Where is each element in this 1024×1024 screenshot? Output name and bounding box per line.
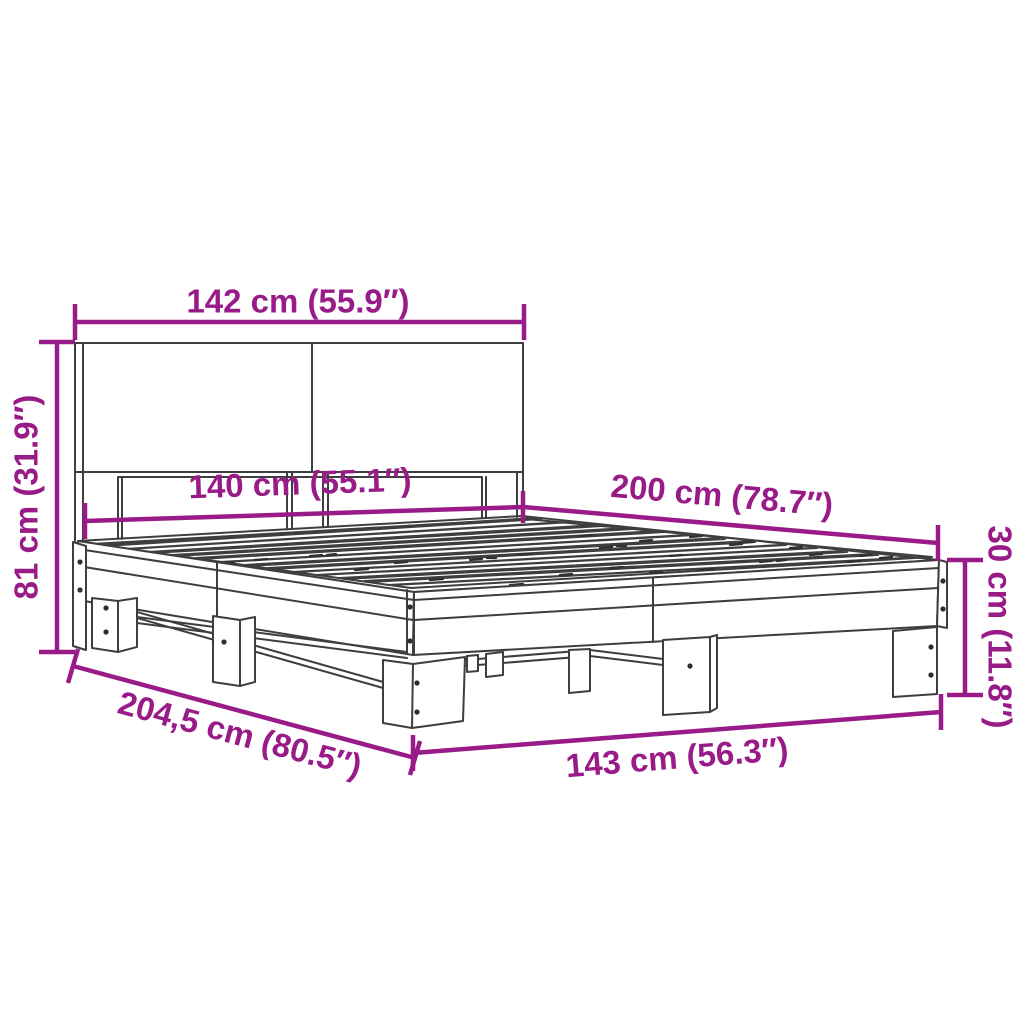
corner-leg <box>383 657 465 728</box>
dimension-frame-height: 30 cm (11.8″) <box>947 526 1019 729</box>
bed-frame-drawing <box>73 343 947 728</box>
dimension-headboard-width: 142 cm (55.9″) <box>75 283 524 341</box>
inner-block-b <box>486 652 503 677</box>
foot-mid-leg <box>663 635 717 715</box>
label-headboard-height: 81 cm (31.9″) <box>8 395 45 600</box>
inner-block-a <box>467 655 478 672</box>
label-slat-width: 140 cm (55.1″) <box>188 461 412 506</box>
right-end-cap <box>937 560 947 628</box>
side-mid-leg <box>213 616 255 686</box>
headboard-panel <box>75 343 523 472</box>
label-headboard-width: 142 cm (55.9″) <box>186 283 409 320</box>
diagram-canvas: 142 cm (55.9″) 81 cm (31.9″) 140 cm (55.… <box>0 0 1024 1024</box>
label-frame-height: 30 cm (11.8″) <box>982 526 1019 729</box>
dimension-headboard-height: 81 cm (31.9″) <box>8 342 76 652</box>
bed-frame-dimension-diagram: 142 cm (55.9″) 81 cm (31.9″) 140 cm (55.… <box>0 0 1024 1024</box>
head-left-leg <box>92 598 137 652</box>
foot-right-leg <box>893 627 937 697</box>
label-bed-length: 200 cm (78.7″) <box>609 467 834 523</box>
left-end-post <box>73 542 86 650</box>
foot-slender-leg <box>569 649 590 693</box>
